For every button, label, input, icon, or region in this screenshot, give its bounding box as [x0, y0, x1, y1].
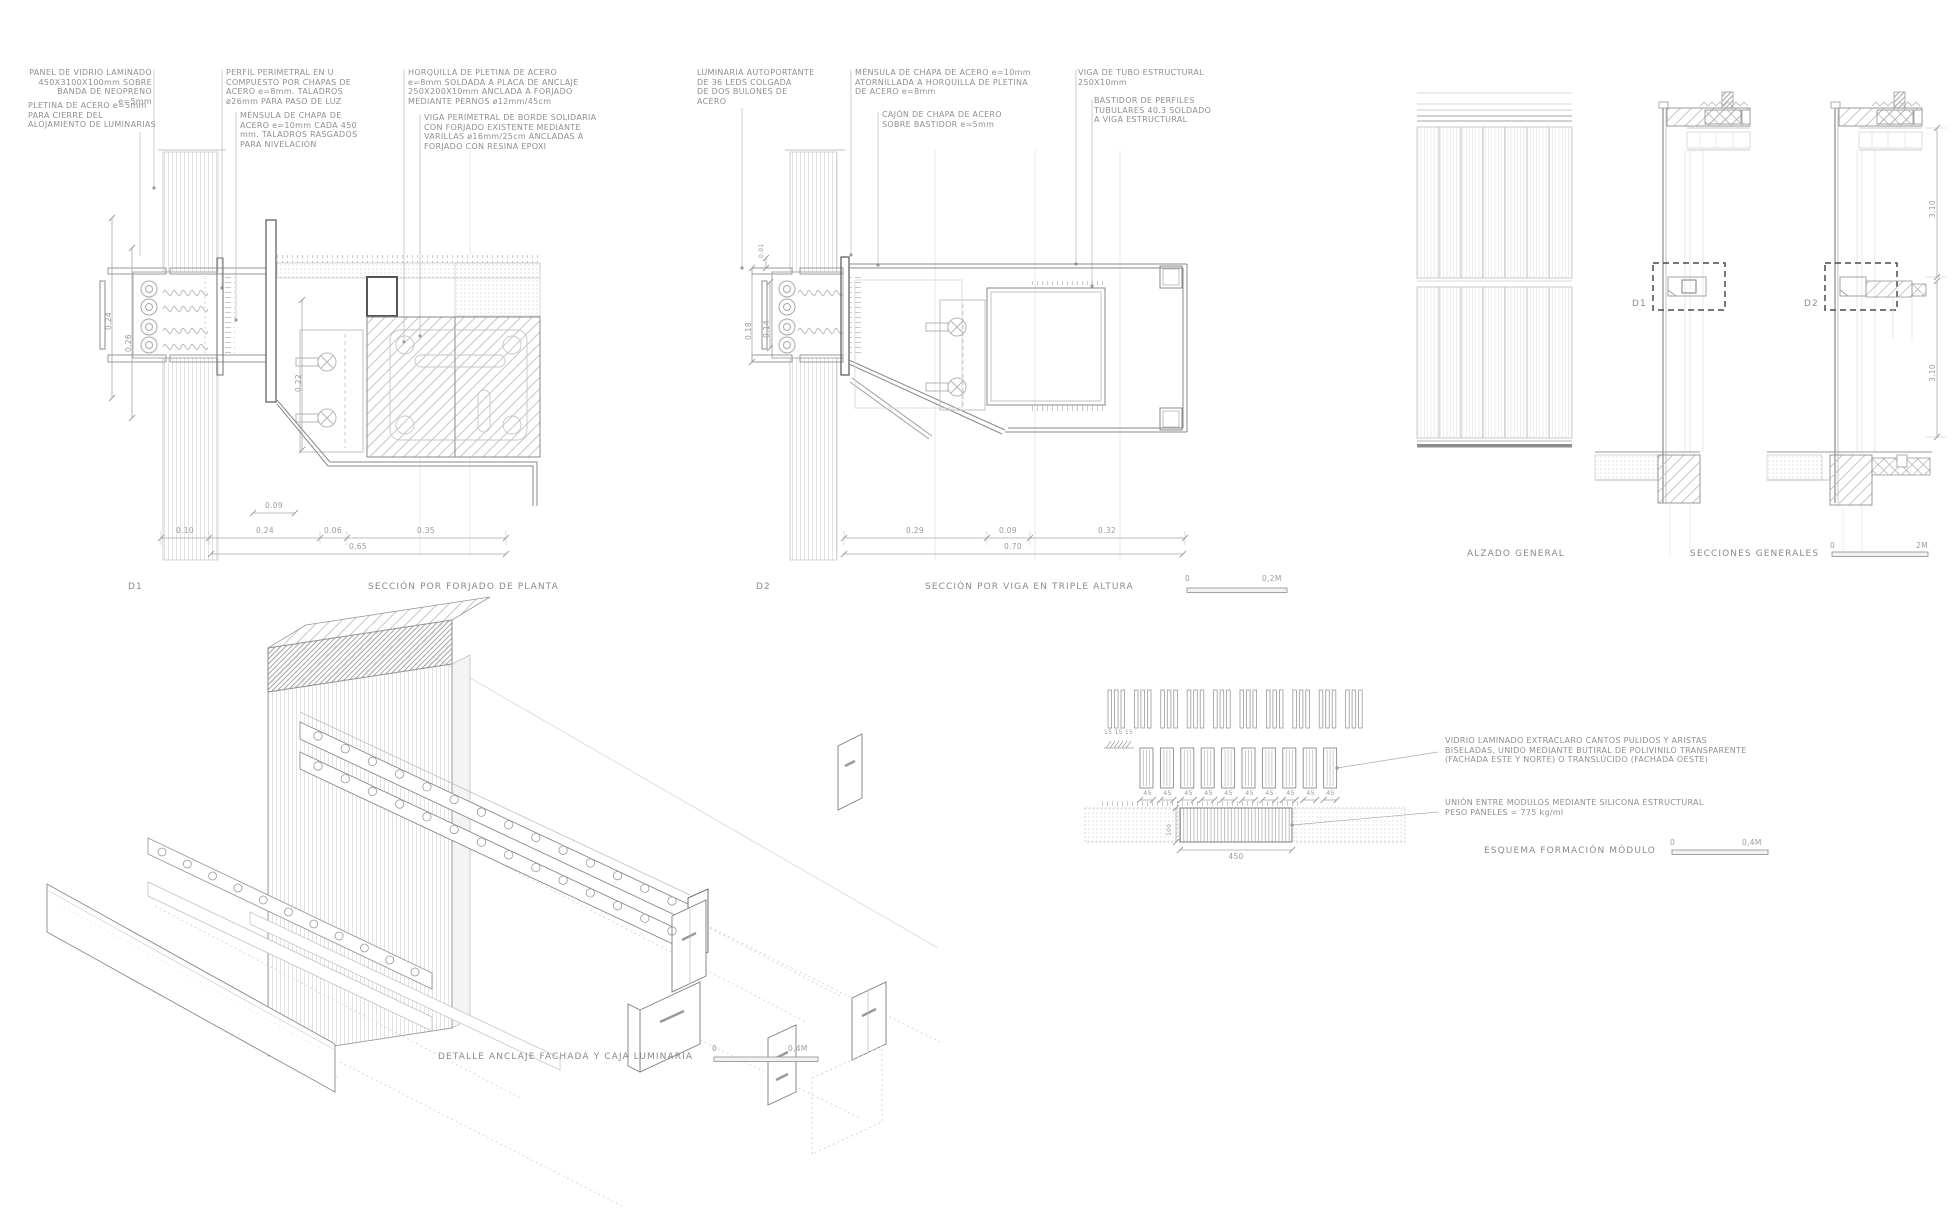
note-union-modulos: UNIÓN ENTRE MODULOS MEDIANTE SILICONA ES… — [1445, 798, 1845, 817]
module-schema-drawing — [1085, 690, 1438, 850]
dim-d1-r1: 0.24 — [250, 526, 280, 535]
d2-label: D2 — [756, 582, 771, 592]
note-pletina-acero: PLETINA DE ACERO e=5mm PARA CIERRE DEL A… — [28, 101, 168, 130]
d1-caption: SECCIÓN POR FORJADO DE PLANTA — [368, 582, 559, 592]
note-mensula-atornillada: MÉNSULA DE CHAPA DE ACERO e=10mm ATORNIL… — [855, 68, 1045, 97]
d2-caption: SECCIÓN POR VIGA EN TRIPLE ALTURA — [925, 582, 1134, 592]
dim-section-upper: 3.10 — [1928, 200, 1937, 218]
axon-scale-zero: 0 — [712, 1044, 717, 1053]
dim-d1-v2: 0.26 — [124, 334, 133, 352]
dim-d1-total: 0.65 — [343, 542, 373, 551]
dim-d2-total: 0.70 — [998, 542, 1028, 551]
d2-scale-max: 0,2M — [1262, 574, 1282, 583]
note-viga-perimetral: VIGA PERIMETRAL DE BORDE SOLIDARIA CON F… — [424, 113, 609, 151]
note-viga-tubo: VIGA DE TUBO ESTRUCTURAL 250X10mm — [1078, 68, 1248, 87]
module-schema-caption: ESQUEMA FORMACIÓN MÓDULO — [1484, 846, 1656, 856]
dim-100: 100 — [1166, 824, 1173, 836]
dim-d1-small: 0.09 — [259, 501, 289, 510]
sections-d1-tag: D1 — [1632, 299, 1647, 309]
dim-d2-r2: 0.32 — [1092, 526, 1122, 535]
secciones-generales-drawing — [1595, 92, 1946, 556]
dim-d1-v1: 0.24 — [104, 312, 113, 330]
note-mensula-chapa: MÉNSULA DE CHAPA DE ACERO e=10mm CADA 45… — [240, 111, 370, 149]
note-vidrio-laminado: VIDRIO LAMINADO EXTRACLARO CANTOS PULIDO… — [1445, 736, 1875, 765]
note-luminaria: LUMINARIA AUTOPORTANTE DE 36 LEDS COLGAD… — [697, 68, 832, 106]
sections-d2-tag: D2 — [1804, 299, 1819, 309]
dim-45-5: 45 — [1222, 789, 1235, 797]
dim-d1-r2: 0.06 — [318, 526, 348, 535]
dim-45-6: 45 — [1243, 789, 1256, 797]
d1-label: D1 — [128, 582, 143, 592]
dim-d1-r3: 0.35 — [411, 526, 441, 535]
dim-d2-r1: 0.09 — [993, 526, 1023, 535]
dim-45-1: 45 — [1141, 789, 1154, 797]
sheet-drawing — [0, 0, 1960, 1209]
dim-d1-v3: 0.22 — [294, 374, 303, 392]
dim-d2-v1: 0.18 — [744, 322, 753, 340]
note-horquilla-pletina: HORQUILLA DE PLETINA DE ACERO e=8mm SOLD… — [408, 68, 588, 106]
note-bastidor: BASTIDOR DE PERFILES TUBULARES 40.3 SOLD… — [1094, 96, 1244, 125]
note-perfil-perimetral: PERFIL PERIMETRAL EN U COMPUESTO POR CHA… — [226, 68, 356, 106]
d2-scale-zero: 0 — [1185, 574, 1190, 583]
dim-section-lower: 3.10 — [1928, 364, 1937, 382]
dim-45-9: 45 — [1304, 789, 1317, 797]
alzado-general-drawing — [1417, 93, 1572, 448]
dim-450: 450 — [1216, 852, 1256, 861]
axon-scale-max: 0,4M — [788, 1044, 808, 1053]
axon-caption: DETALLE ANCLAJE FACHADA Y CAJA LUMINARIA — [438, 1052, 693, 1062]
dim-45-3: 45 — [1182, 789, 1195, 797]
dim-45-2: 45 — [1161, 789, 1174, 797]
secciones-scale-max: 2M — [1916, 541, 1928, 550]
dim-d2-v2: 0.14 — [762, 320, 771, 338]
secciones-scale-zero: 0 — [1830, 541, 1835, 550]
module-scale-zero: 0 — [1670, 838, 1675, 847]
dim-45-4: 45 — [1202, 789, 1215, 797]
dim-d2-gap: 0.01 — [758, 243, 765, 258]
dim-d1-r0: 0.10 — [170, 526, 200, 535]
alzado-caption: ALZADO GENERAL — [1467, 549, 1565, 559]
axonometric-drawing — [47, 597, 940, 1206]
dim-45-7: 45 — [1263, 789, 1276, 797]
secciones-caption: SECCIONES GENERALES — [1690, 549, 1819, 559]
drawing-sheet: PANEL DE VIDRIO LAMINADO 450X3100X100mm … — [0, 0, 1960, 1209]
dim-triple-15: 15 15 15 — [1104, 729, 1133, 736]
dim-45-8: 45 — [1284, 789, 1297, 797]
dim-45-10: 45 — [1324, 789, 1337, 797]
dim-d2-r0: 0.29 — [900, 526, 930, 535]
note-cajon-chapa: CAJÓN DE CHAPA DE ACERO SOBRE BASTIDOR e… — [882, 110, 1052, 129]
module-scale-max: 0,4M — [1742, 838, 1762, 847]
